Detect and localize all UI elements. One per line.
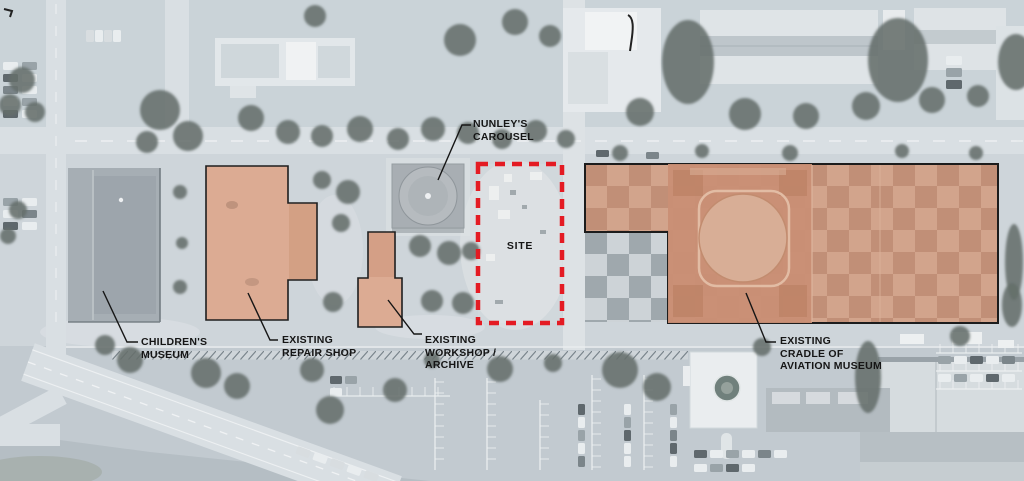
childrens-museum-building [68, 168, 160, 322]
carousel-building [386, 158, 470, 236]
label-repair-shop: EXISTING REPAIR SHOP [282, 334, 356, 359]
label-site: SITE [478, 240, 562, 253]
checker-plaza [585, 232, 668, 322]
aerial-site-plan: NUNLEY'S CAROUSEL SITE CHILDREN'S MUSEUM… [0, 0, 1024, 481]
label-childrens-museum: CHILDREN'S MUSEUM [141, 336, 207, 361]
museum-dome [699, 194, 787, 282]
label-workshop-archive: EXISTING WORKSHOP / ARCHIVE [425, 334, 496, 372]
label-cradle-of-aviation: EXISTING CRADLE OF AVIATION MUSEUM [780, 335, 882, 373]
label-nunleys-carousel: NUNLEY'S CAROUSEL [473, 118, 534, 143]
